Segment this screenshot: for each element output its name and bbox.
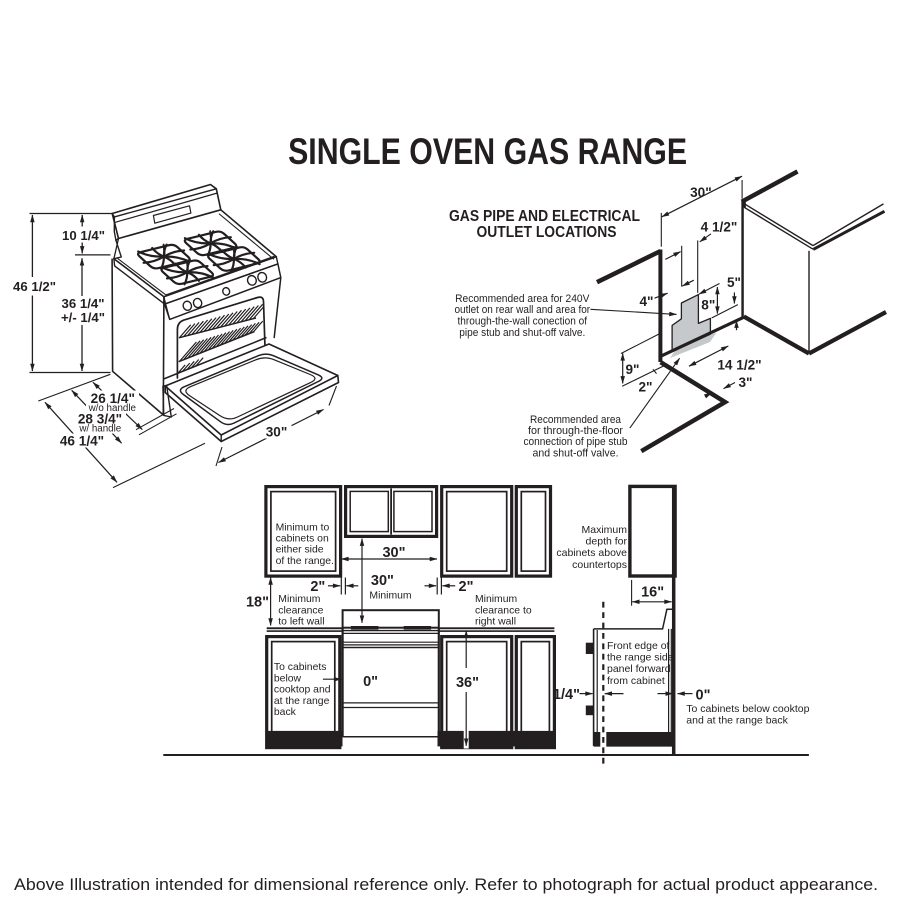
svg-text:3": 3" (738, 375, 752, 390)
svg-text:46 1/2": 46 1/2" (13, 279, 56, 294)
svg-text:SINGLE OVEN GAS RANGE: SINGLE OVEN GAS RANGE (288, 130, 687, 172)
svg-text:0": 0" (696, 688, 711, 704)
svg-text:18": 18" (246, 595, 269, 611)
svg-text:below: below (274, 673, 302, 684)
svg-text:10 1/4": 10 1/4" (62, 228, 105, 243)
svg-text:Maximum: Maximum (581, 524, 627, 536)
svg-text:at the range: at the range (274, 696, 330, 707)
svg-text:14 1/2": 14 1/2" (717, 358, 761, 373)
svg-text:16": 16" (641, 585, 664, 601)
svg-text:back: back (274, 707, 297, 718)
svg-text:4": 4" (639, 294, 653, 309)
svg-text:30": 30" (382, 545, 405, 561)
svg-text:Minimum to: Minimum to (276, 523, 330, 534)
svg-text:46 1/4": 46 1/4" (60, 434, 104, 449)
svg-text:30": 30" (690, 185, 712, 200)
svg-text:to left wall: to left wall (278, 617, 324, 628)
svg-text:depth for: depth for (586, 536, 628, 548)
svg-text:+/- 1/4": +/- 1/4" (61, 310, 105, 325)
svg-text:To cabinets below cooktop: To cabinets below cooktop (686, 703, 809, 715)
svg-text:for through-the-floor: for through-the-floor (528, 425, 623, 437)
svg-text:connection of pipe stub: connection of pipe stub (524, 436, 628, 448)
svg-text:2": 2" (459, 579, 474, 595)
svg-text:Minimum: Minimum (475, 594, 517, 605)
svg-text:5": 5" (727, 275, 741, 290)
svg-text:countertops: countertops (572, 559, 627, 571)
svg-text:through-the-wall conection of: through-the-wall conection of (458, 316, 588, 328)
svg-text:pipe stub and shut-off valve.: pipe stub and shut-off valve. (459, 327, 585, 339)
svg-text:0": 0" (363, 674, 378, 690)
svg-text:clearance to: clearance to (475, 605, 532, 616)
svg-text:Front edge of: Front edge of (607, 640, 670, 652)
svg-text:30": 30" (266, 425, 288, 440)
svg-text:and at the range back: and at the range back (686, 715, 788, 727)
svg-text:To cabinets: To cabinets (274, 662, 327, 673)
svg-text:Minimum: Minimum (278, 594, 320, 605)
svg-text:36 1/4": 36 1/4" (62, 296, 105, 311)
svg-text:8": 8" (701, 297, 715, 312)
svg-text:OUTLET LOCATIONS: OUTLET LOCATIONS (477, 224, 617, 241)
svg-text:9": 9" (625, 362, 639, 377)
svg-text:the range side: the range side (607, 652, 674, 664)
svg-text:panel forward: panel forward (607, 663, 671, 675)
svg-text:cabinets above: cabinets above (556, 547, 627, 559)
svg-text:2": 2" (310, 579, 325, 595)
svg-text:Minimum: Minimum (369, 590, 411, 601)
svg-text:outlet on rear wall and area f: outlet on rear wall and area for (454, 304, 590, 316)
svg-text:of the range.: of the range. (276, 556, 334, 567)
svg-text:cooktop and: cooktop and (274, 685, 331, 696)
svg-text:2": 2" (638, 380, 652, 395)
svg-text:cabinets on: cabinets on (276, 534, 329, 545)
svg-text:Recommended area: Recommended area (530, 414, 622, 426)
svg-text:from cabinet: from cabinet (607, 675, 665, 687)
svg-text:GAS PIPE AND ELECTRICAL: GAS PIPE AND ELECTRICAL (449, 208, 640, 225)
svg-text:4 1/2": 4 1/2" (701, 220, 738, 235)
svg-text:36": 36" (456, 675, 479, 691)
svg-text:Recommended area for 240V: Recommended area for 240V (455, 293, 590, 305)
svg-text:either side: either side (276, 545, 324, 556)
svg-text:1/4": 1/4" (553, 687, 580, 703)
svg-text:Above Illustration intended fo: Above Illustration intended for dimensio… (14, 875, 878, 894)
svg-text:and shut-off valve.: and shut-off valve. (533, 447, 619, 459)
svg-text:30": 30" (371, 573, 394, 589)
svg-text:clearance: clearance (278, 605, 323, 616)
svg-text:right wall: right wall (475, 617, 516, 628)
